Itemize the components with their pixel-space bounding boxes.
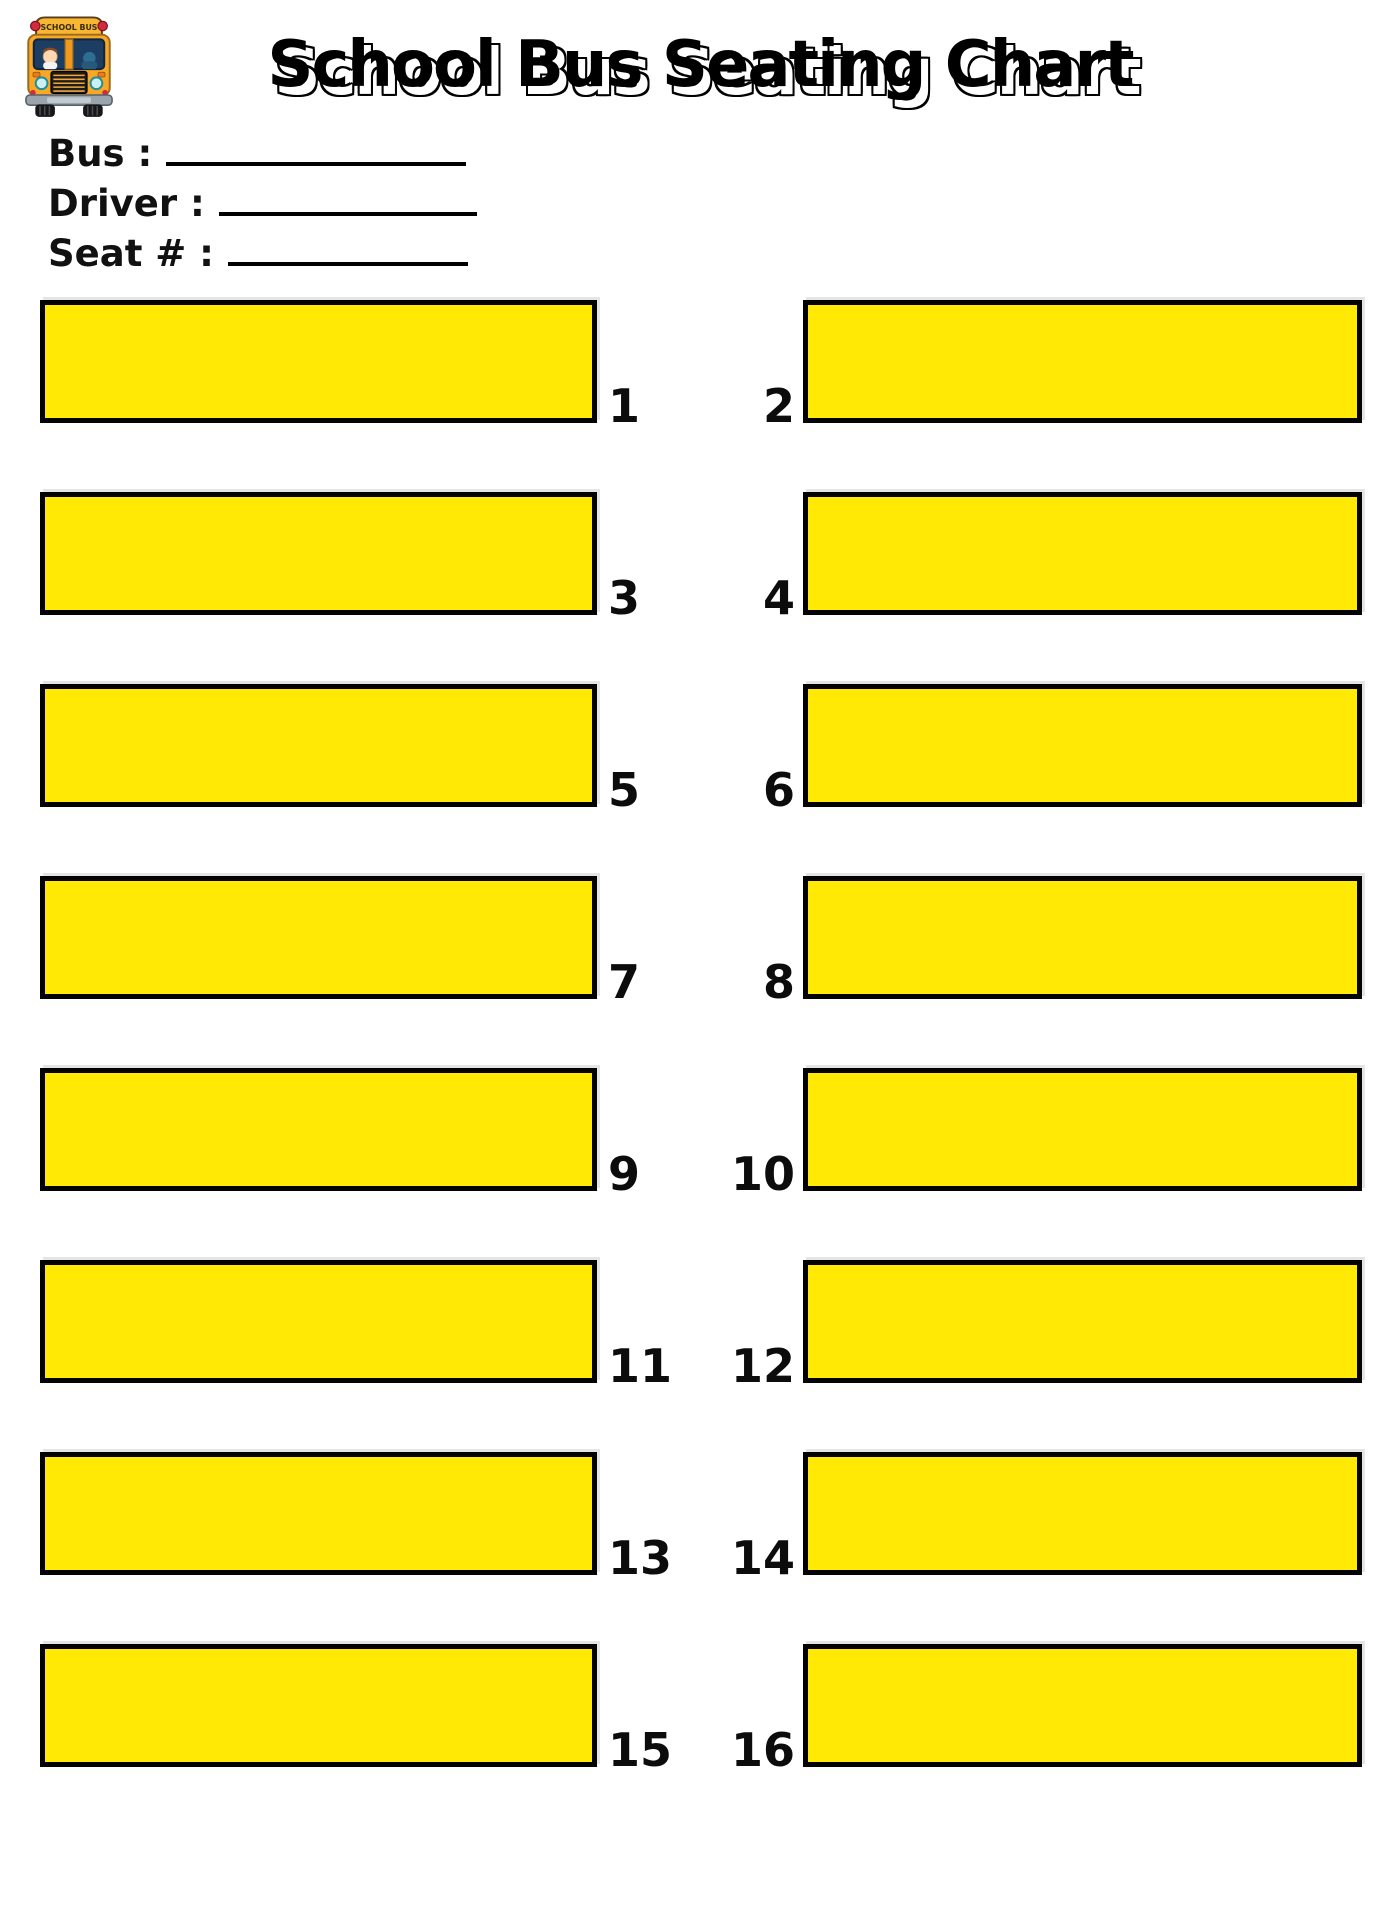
school-bus-icon: SCHOOL BUS [22, 14, 116, 118]
seat-number-9: 9 [608, 1151, 698, 1197]
seat-row-1: 1 2 [0, 300, 1400, 423]
seat-number-12: 12 [700, 1343, 795, 1389]
seat-number-15: 15 [608, 1727, 698, 1773]
seat-number-field-label: Seat # : [48, 232, 214, 275]
seat-box-3 [40, 492, 597, 615]
seat-row-6: 11 12 [0, 1260, 1400, 1383]
seat-box-10 [803, 1068, 1362, 1191]
seat-number-1: 1 [608, 383, 698, 429]
seat-box-12 [803, 1260, 1362, 1383]
seat-box-6 [803, 684, 1362, 807]
seat-box-1 [40, 300, 597, 423]
seat-row-4: 7 8 [0, 876, 1400, 999]
seat-box-9 [40, 1068, 597, 1191]
seat-row-5: 9 10 [0, 1068, 1400, 1191]
page-title-text: School Bus Seating Chart [230, 28, 1170, 102]
bus-field-label: Bus : [48, 132, 152, 175]
bus-sign-text: SCHOOL BUS [41, 23, 98, 32]
seat-box-7 [40, 876, 597, 999]
seat-number-16: 16 [700, 1727, 795, 1773]
seat-box-11 [40, 1260, 597, 1383]
seat-number-field: Seat # : [48, 232, 477, 282]
seating-chart: 1 2 3 4 5 6 7 8 9 10 11 12 13 14 [0, 300, 1400, 1836]
seat-box-8 [803, 876, 1362, 999]
seat-number-8: 8 [700, 959, 795, 1005]
seat-row-2: 3 4 [0, 492, 1400, 615]
driver-field-label: Driver : [48, 182, 205, 225]
seat-row-3: 5 6 [0, 684, 1400, 807]
seat-row-7: 13 14 [0, 1452, 1400, 1575]
seat-number-2: 2 [700, 383, 795, 429]
seat-box-5 [40, 684, 597, 807]
info-form: Bus : Driver : Seat # : [48, 132, 477, 282]
seat-number-6: 6 [700, 767, 795, 813]
seat-number-13: 13 [608, 1535, 698, 1581]
driver-field: Driver : [48, 182, 477, 232]
seat-box-4 [803, 492, 1362, 615]
seat-number-5: 5 [608, 767, 698, 813]
page-title: School Bus Seating Chart School Bus Seat… [230, 28, 1170, 138]
seat-number-field-blank-line [228, 236, 468, 266]
seat-box-2 [803, 300, 1362, 423]
seat-box-15 [40, 1644, 597, 1767]
seat-number-4: 4 [700, 575, 795, 621]
seat-number-14: 14 [700, 1535, 795, 1581]
seat-number-7: 7 [608, 959, 698, 1005]
seat-number-10: 10 [700, 1151, 795, 1197]
bus-field-blank-line [166, 136, 466, 166]
seat-box-16 [803, 1644, 1362, 1767]
seat-box-14 [803, 1452, 1362, 1575]
seat-number-3: 3 [608, 575, 698, 621]
seat-number-11: 11 [608, 1343, 698, 1389]
bus-field: Bus : [48, 132, 477, 182]
seat-row-8: 15 16 [0, 1644, 1400, 1767]
seat-box-13 [40, 1452, 597, 1575]
driver-field-blank-line [219, 186, 477, 216]
